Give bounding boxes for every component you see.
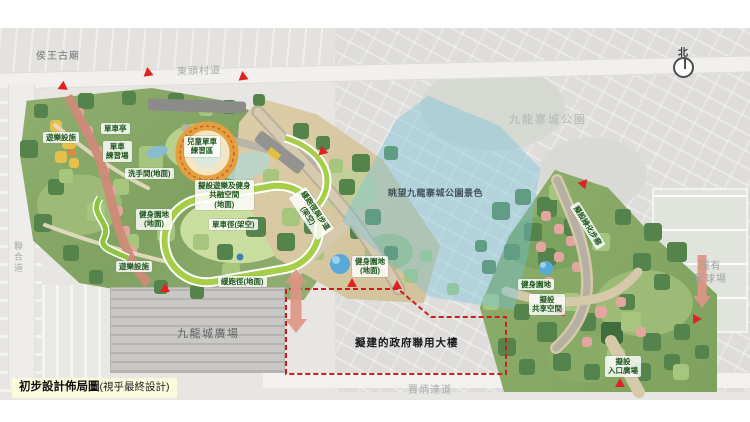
facility-label-cycle-practice: 單車 練習場 [103,141,132,162]
facility-label-jogging-trail: 緩跑徑(地面) [218,276,267,287]
park-master-plan: 侯王古廟 東頭村道 九龍寨城公園 聯合道 九龍城廣場 賈炳達道 現有 足球場 眺… [0,0,750,422]
facility-label-play-2: 遊樂設施 [116,261,152,272]
label-football-ground: 現有 足球場 [694,260,727,286]
facility-label-cycle-track: 單車徑(架空) [209,219,258,230]
aerial-photo-southwest-block [42,285,112,392]
facility-label-play-1: 遊樂設施 [43,132,79,143]
facility-label-kids-cycle: 兒童單車 練習區 [184,136,220,157]
facility-label-fitness-west: 健身園地 (地面) [136,209,172,230]
label-road-tung-tau-tsuen: 東頭村道 [177,61,221,78]
label-temple: 侯王古廟 [36,47,80,62]
label-road-junction: 聯合道 [12,241,25,274]
title-note: (視乎最終設計) [100,381,170,393]
facility-label-cycle-hub: 單車亭 [101,123,130,134]
facility-label-inclusive-space: 擬設遊樂及健身 共融空間 (地面) [195,180,254,210]
label-road-carpenter: 賈炳達道 [408,381,452,396]
facility-label-shared-space: 擬設 共享空間 [529,294,565,315]
facility-label-entrance-plaza: 擬設 入口廣場 [605,356,641,377]
facility-label-fitness-east: 健身園地 [518,279,554,290]
title-main: 初步設計佈局圖 [19,381,100,393]
label-walled-city-park: 九龍寨城公園 [509,111,587,127]
label-gov-building: 擬建的政府聯用大樓 [355,335,459,350]
label-view-corridor: 眺望九龍寨城公園景色 [388,186,483,199]
label-kcp-plaza: 九龍城廣場 [177,325,240,341]
north-compass-icon [673,57,694,78]
page-title: 初步設計佈局圖(視乎最終設計) [12,378,177,398]
facility-label-fitness-central: 健身園地 (地面) [352,256,388,277]
tree-cluster-flowering [0,0,2,2]
facility-label-toilet: 洗手間(地面) [125,168,174,179]
